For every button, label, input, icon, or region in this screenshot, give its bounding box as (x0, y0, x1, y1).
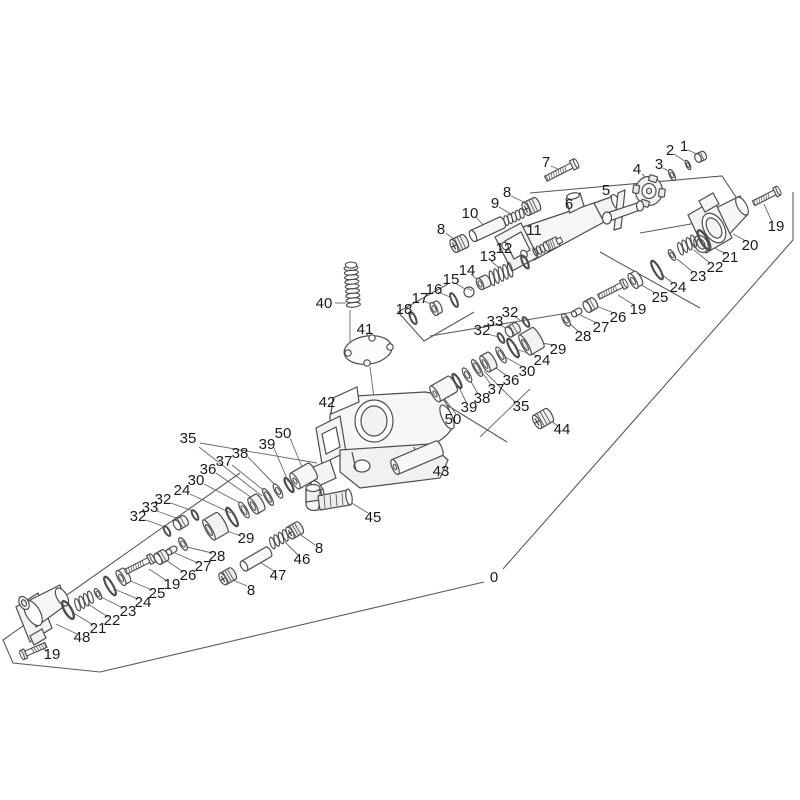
part-label-8-51: 8 (315, 540, 323, 557)
part-label-14-15: 14 (459, 262, 476, 279)
part-label-23-24: 23 (690, 268, 707, 285)
leader-line-58 (274, 448, 288, 481)
part-label-8-11: 8 (437, 221, 445, 238)
part-oring-32a-right (521, 316, 530, 328)
leader-line-53 (301, 535, 315, 545)
part-bolt-19-right (596, 278, 629, 301)
part-label-3-3: 3 (655, 156, 663, 173)
leader-line-57 (290, 438, 302, 467)
leader-line-60 (232, 465, 267, 493)
part-label-8-52: 8 (247, 582, 255, 599)
part-washer-23-right (667, 249, 677, 262)
part-label-42-46: 42 (319, 394, 336, 411)
leader-line-66 (146, 520, 165, 527)
part-oring-32a-left (162, 525, 171, 537)
leader-line-1 (674, 154, 686, 162)
part-label-29-31: 29 (550, 341, 567, 358)
part-label-2-2: 2 (666, 142, 674, 159)
part-label-25-26: 25 (652, 289, 669, 306)
part-oring-24-right (505, 337, 521, 358)
leader-line-54 (233, 580, 247, 586)
part-pin-47 (239, 546, 274, 572)
part-oring-21-left (60, 600, 76, 621)
pump-head-left-48 (16, 585, 71, 645)
part-label-5-5: 5 (602, 182, 610, 199)
part-label-43-47: 43 (433, 463, 450, 480)
leader-line-65 (157, 511, 179, 519)
part-oring-24b-right (649, 259, 665, 280)
part-label-11-12: 11 (526, 222, 542, 239)
part-label-12-13: 12 (496, 240, 513, 257)
part-label-35-38: 35 (513, 398, 530, 415)
part-label-48-74: 48 (74, 629, 91, 646)
part-label-24-25: 24 (670, 279, 687, 296)
part-label-29-64: 29 (238, 530, 255, 547)
part-label-32-43: 32 (474, 322, 491, 339)
part-seat-17 (428, 299, 444, 316)
part-label-8-8: 8 (503, 184, 511, 201)
part-pin-27-right (570, 307, 583, 318)
elbow-fitting-45 (306, 485, 353, 511)
part-label-9-9: 9 (491, 195, 499, 212)
leader-line-47 (370, 367, 374, 398)
part-washer-2 (684, 160, 692, 171)
part-label-40-44: 40 (316, 295, 333, 312)
part-label-21-73: 21 (90, 620, 107, 637)
part-label-39-55: 39 (259, 436, 276, 453)
part-nut-8-mid-lower (217, 567, 238, 587)
part-label-19-75: 19 (44, 646, 61, 663)
part-label-37-57: 37 (216, 453, 233, 470)
part-label-35-53: 35 (180, 430, 197, 447)
part-nipple-44 (531, 407, 556, 430)
part-label-44-40: 44 (554, 421, 571, 438)
part-nut-1 (693, 150, 707, 163)
part-label-24-60: 24 (174, 482, 191, 499)
exploded-parts-diagram: 0123456789108111213141516171819202122232… (0, 0, 800, 800)
part-label-1-1: 1 (680, 138, 688, 155)
part-label-18-19: 18 (396, 301, 413, 318)
part-oring-32b-left (190, 509, 199, 521)
part-bolt-19-top-right (751, 186, 782, 208)
part-spring-40 (344, 262, 361, 308)
part-bolt-19-lower-left (123, 553, 156, 576)
part-label-13-14: 13 (480, 248, 497, 265)
part-washer-28-left (177, 536, 189, 551)
part-label-47-50: 47 (270, 567, 287, 584)
part-nut-8-mid-upper (284, 521, 305, 541)
part-label-28-30: 28 (575, 328, 592, 345)
part-label-27-29: 27 (593, 319, 610, 336)
part-label-10-10: 10 (462, 205, 479, 222)
part-label-41-45: 41 (357, 321, 374, 338)
part-piston-29-left (201, 511, 230, 541)
part-oring-32b-right (496, 332, 505, 344)
part-label-0-0: 0 (490, 569, 498, 586)
leader-line-64 (171, 503, 193, 511)
part-label-19-20: 19 (768, 218, 785, 235)
part-ball-15 (464, 287, 474, 297)
part-washer-3 (667, 169, 677, 182)
part-label-23-71: 23 (120, 603, 137, 620)
part-label-15-16: 15 (443, 271, 460, 288)
part-label-21-22: 21 (722, 249, 739, 266)
part-label-38-56: 38 (232, 445, 249, 462)
part-label-36-34: 36 (503, 372, 520, 389)
part-washer-38-right (460, 367, 473, 384)
part-label-24-70: 24 (135, 594, 152, 611)
part-label-50-39: 50 (445, 411, 462, 428)
part-label-7-7: 7 (542, 154, 550, 171)
part-seat-25-right (626, 269, 645, 290)
part-oring-24-left (102, 575, 118, 596)
part-label-27-66: 27 (195, 558, 212, 575)
part-label-46-49: 46 (294, 551, 311, 568)
part-nut-8-upper-left (448, 233, 470, 253)
part-label-17-18: 17 (412, 290, 429, 307)
part-oring-16 (449, 292, 460, 308)
part-spring-22-left (71, 590, 97, 613)
unloader-body-6 (495, 192, 623, 271)
part-label-22-23: 22 (707, 259, 724, 276)
part-washer-28-right (560, 312, 572, 327)
part-pin-27-left (165, 545, 178, 556)
part-label-6-6: 6 (565, 196, 573, 213)
part-nut-26-right (581, 296, 599, 313)
part-label-26-67: 26 (180, 567, 197, 584)
part-label-39-37: 39 (461, 399, 478, 416)
part-label-19-27: 19 (630, 301, 647, 318)
part-label-45-48: 45 (365, 509, 382, 526)
part-label-30-33: 30 (519, 363, 536, 380)
part-label-50-54: 50 (275, 425, 292, 442)
leader-line-59 (248, 457, 277, 487)
leader-line-8 (499, 207, 511, 214)
part-label-20-21: 20 (742, 237, 759, 254)
part-washer-23-left (93, 588, 103, 601)
part-label-32-41: 32 (502, 304, 519, 321)
leader-line-6 (551, 166, 558, 169)
part-washer-38-left (271, 483, 284, 500)
part-label-32-63: 32 (130, 508, 147, 525)
part-label-4-4: 4 (633, 161, 641, 178)
diagram-canvas: 0123456789108111213141516171819202122232… (0, 0, 800, 800)
part-label-19-68: 19 (164, 576, 181, 593)
part-label-26-28: 26 (610, 309, 627, 326)
part-label-24-32: 24 (534, 352, 551, 369)
